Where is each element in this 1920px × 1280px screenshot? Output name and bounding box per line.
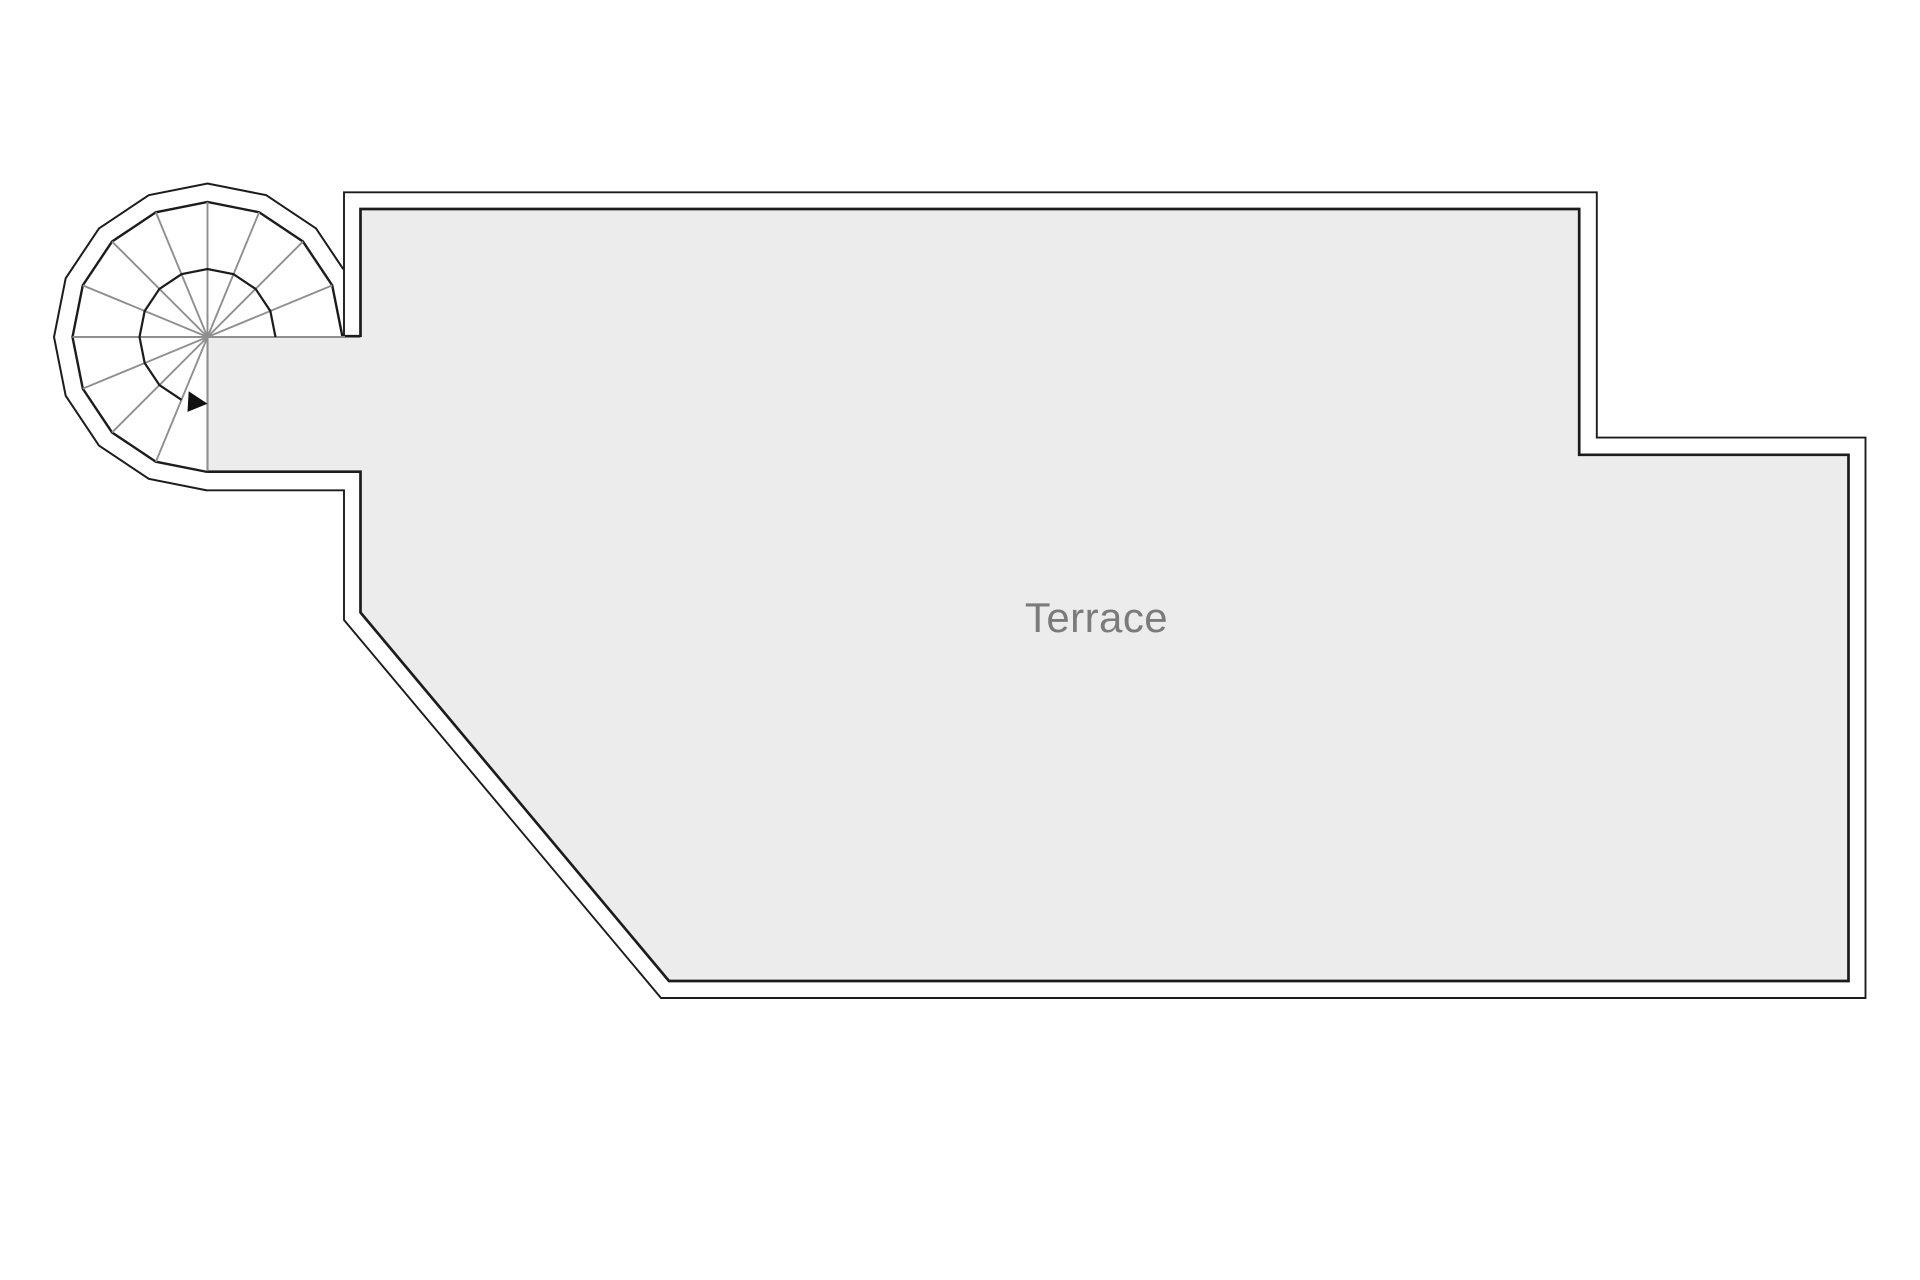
svg-text:Terrace: Terrace: [1025, 594, 1168, 641]
